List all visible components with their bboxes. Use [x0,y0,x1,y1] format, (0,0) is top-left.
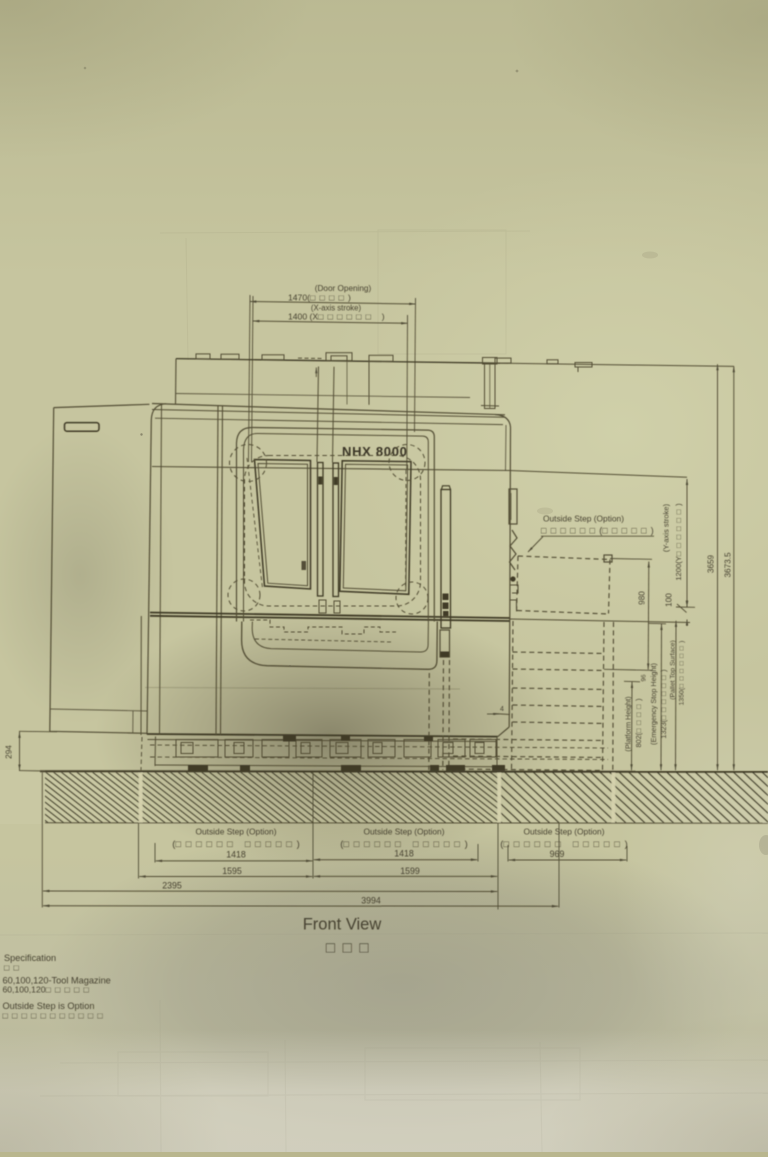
svg-text:□□□: □□□ [326,940,376,957]
svg-text:100: 100 [665,593,674,607]
svg-text:(□□□□□□ □□□□□): (□□□□□□ □□□□□) [500,838,628,849]
svg-text:1470(□□□□): 1470(□□□□) [288,293,351,303]
svg-text:96: 96 [641,674,648,682]
svg-text:1400 (X□□□□□□ ): 1400 (X□□□□□□ ) [288,312,385,322]
svg-text:(Y-axis stroke): (Y-axis stroke) [662,503,671,552]
svg-text:4: 4 [500,706,504,713]
svg-text:1595: 1595 [222,866,242,876]
svg-text:3673.5: 3673.5 [724,552,733,577]
svg-text:969: 969 [550,849,565,859]
svg-text:1418: 1418 [226,850,246,860]
svg-text:1323(□□□□□□): 1323(□□□□□□) [659,669,668,738]
svg-text:(Pallet Top Surface): (Pallet Top Surface) [670,640,677,700]
svg-text:NHX 8000: NHX 8000 [342,444,408,459]
svg-text:(□□□□□□ □□□□□): (□□□□□□ □□□□□) [340,838,468,849]
svg-text:3994: 3994 [361,896,381,906]
svg-text:294: 294 [5,745,14,759]
svg-text:(□□□□□□ □□□□□): (□□□□□□ □□□□□) [172,838,300,849]
svg-text:Front View: Front View [303,916,382,934]
svg-text:Outside Step is Option: Outside Step is Option [3,1001,95,1011]
svg-text:Outside Step (Option): Outside Step (Option) [196,827,277,837]
svg-text:□□□□□□(□□□□□): □□□□□□(□□□□□) [541,526,654,536]
svg-text:60,100,120□□□□□: 60,100,120□□□□□ [3,985,93,995]
svg-text:Outside Step (Option): Outside Step (Option) [524,827,605,837]
svg-text:Outside Step (Option): Outside Step (Option) [364,827,445,837]
svg-text:Specification: Specification [4,953,56,963]
svg-text:□□: □□ [4,963,23,973]
svg-text:1418: 1418 [394,849,414,859]
svg-text:802(□□□□): 802(□□□□) [634,698,643,747]
svg-text:(Platform Height): (Platform Height) [624,696,633,751]
svg-text:1599: 1599 [400,866,420,876]
svg-text:3659: 3659 [707,554,716,573]
svg-text:2395: 2395 [162,881,182,891]
svg-text:1350(□□□□□□): 1350(□□□□□□) [679,641,686,706]
svg-text:(Emergency Stop Height): (Emergency Stop Height) [649,663,658,745]
svg-text:Outside Step (Option): Outside Step (Option) [543,514,624,524]
svg-text:980: 980 [638,591,647,605]
svg-text:□□□□□□□□□□□: □□□□□□□□□□□ [3,1011,107,1021]
svg-text:1200(Y□□□□□□): 1200(Y□□□□□□) [674,503,683,581]
